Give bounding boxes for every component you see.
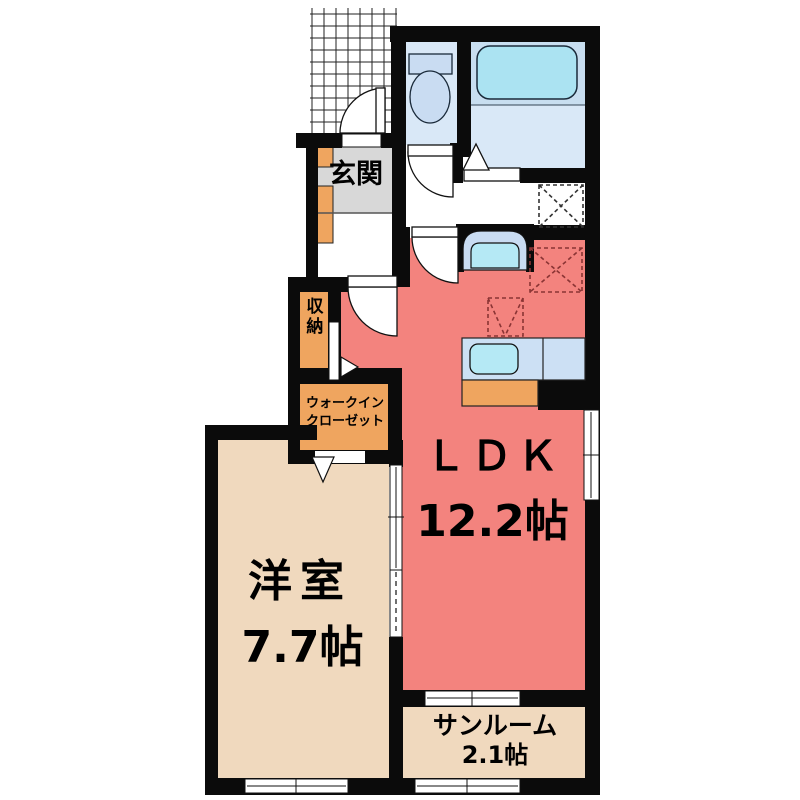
shoe-cabinet-lower <box>316 186 333 243</box>
sunroom-area-label: 2.1帖 <box>405 741 585 770</box>
kitchen-cabinet <box>462 380 538 406</box>
wall-entrance-left-stub <box>296 133 342 148</box>
window-western-bottom <box>245 778 348 793</box>
wall-western-left <box>205 425 218 795</box>
wall-bath-bottom <box>520 168 600 183</box>
entrance-label: 玄関 <box>318 159 394 191</box>
storage-door <box>329 322 339 380</box>
ldk-area-label: 12.2帖 <box>395 496 590 549</box>
sunroom-label: サンルーム <box>405 711 585 741</box>
kitchen-sink <box>470 344 518 374</box>
floor-plan-drawing <box>0 0 800 800</box>
floor-plan: 玄関 収納 ウォークイン クローゼット ＬＤＫ 12.2帖 洋室 7.7帖 サン… <box>0 0 800 800</box>
wall-entrance-left <box>306 133 318 279</box>
wall-between-doors <box>397 227 410 287</box>
wall-toilet-bath-divider <box>457 26 471 157</box>
toilet-bowl <box>410 71 450 123</box>
entrance-door-leaf <box>376 88 385 133</box>
washbasin-bowl <box>471 243 519 268</box>
storage-label: 収納 <box>302 297 322 337</box>
wall-western-ldk-upper <box>389 440 403 467</box>
room-western <box>218 438 389 783</box>
western-room-label: 洋室 <box>210 556 390 609</box>
wall-kitchen-stub <box>538 380 585 410</box>
toilet-door-swing <box>408 152 453 197</box>
washer-space <box>539 185 583 227</box>
western-ldk-sliding-door <box>388 465 404 637</box>
western-room-area-label: 7.7帖 <box>210 622 395 675</box>
bathtub <box>477 46 577 99</box>
wic-label-line1: ウォークイン <box>298 396 392 412</box>
wic-label-line2: クローゼット <box>298 414 392 430</box>
hallway-ldk-door-leaf <box>348 276 397 287</box>
window-sunroom-bottom <box>415 778 520 793</box>
toilet-door-leaf <box>408 145 453 156</box>
ldk-label: ＬＤＫ <box>402 432 586 481</box>
wall-top <box>390 26 600 42</box>
entrance-door-opening <box>342 134 381 147</box>
washroom-ldk-door-leaf <box>412 227 458 237</box>
window-sunroom-top <box>425 690 520 707</box>
room-bathroom-floor <box>471 105 585 168</box>
